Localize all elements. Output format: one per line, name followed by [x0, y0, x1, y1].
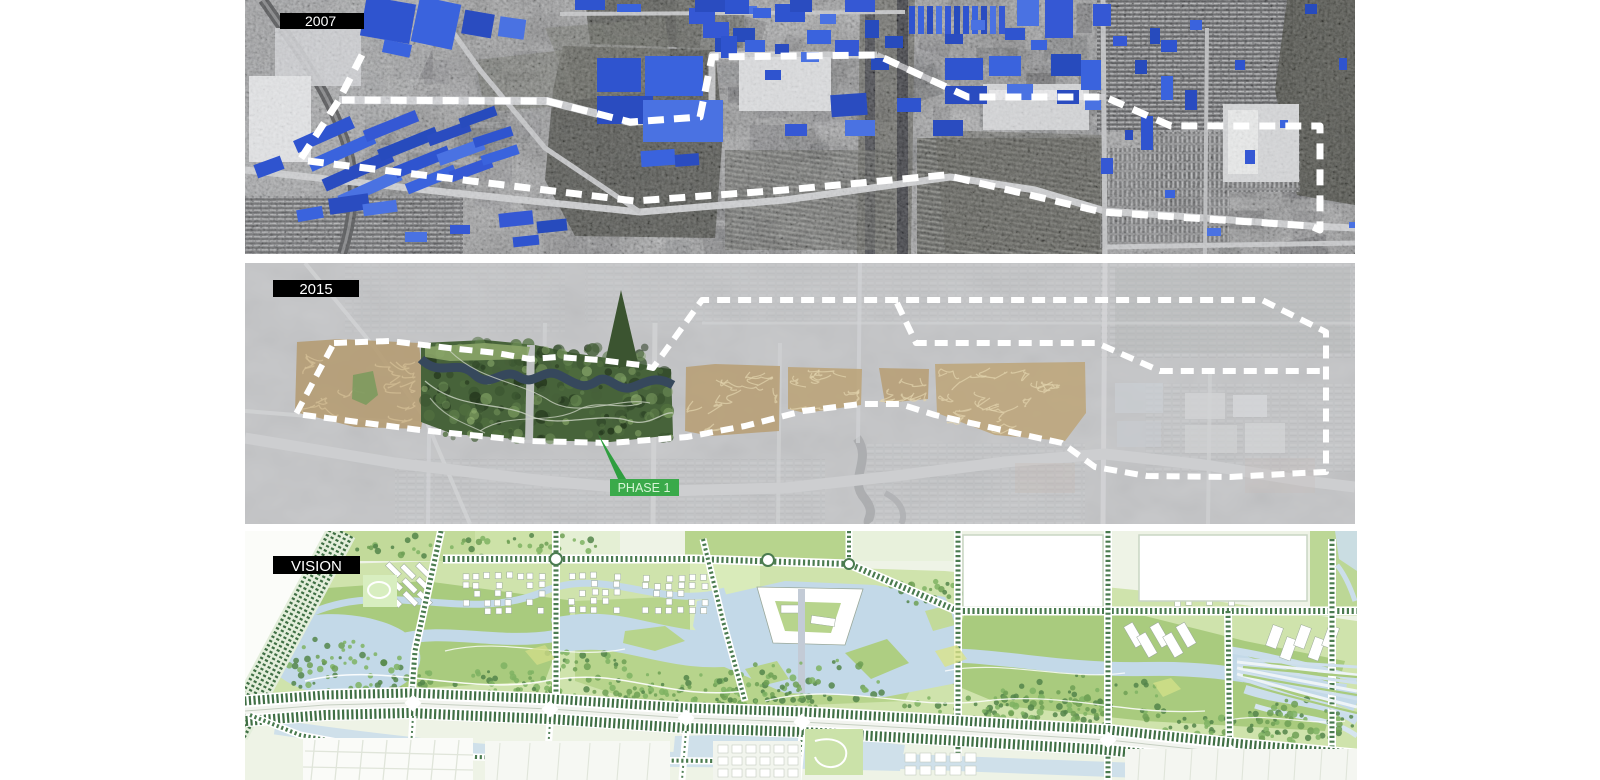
svg-text:2015: 2015 — [299, 281, 332, 298]
svg-text:VISION: VISION — [291, 558, 342, 575]
svg-text:2007: 2007 — [305, 13, 336, 29]
svg-text:PHASE 1: PHASE 1 — [618, 481, 671, 495]
